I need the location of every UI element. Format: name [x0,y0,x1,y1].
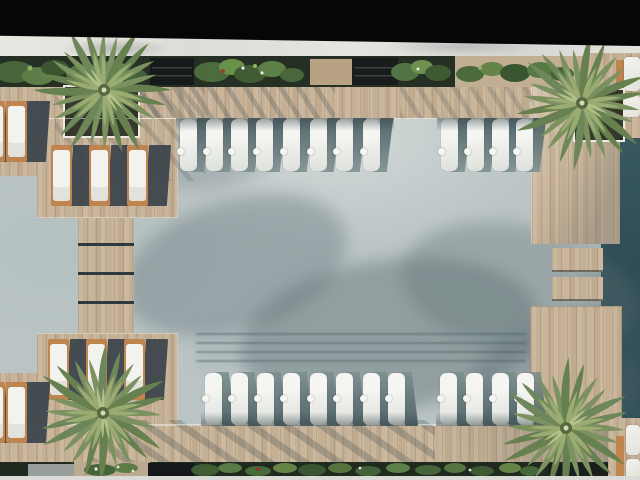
side-table-knob [464,148,471,155]
side-table-knob [228,148,235,155]
deck-overhang-shadow [176,118,394,131]
side-table-knob [385,395,392,402]
side-table-knob [254,395,261,402]
side-table-knob [438,148,445,155]
side-table-knob [333,395,340,402]
side-table-knob [307,395,314,402]
palm-tree-top-right [507,28,640,178]
daybed-mattress [0,106,3,157]
palm-tree-bottom-right [491,353,640,480]
side-table-knob [307,148,314,155]
side-table-knob [333,148,340,155]
side-table-knob [280,395,287,402]
side-table-knob [360,148,367,155]
side-table-knob [463,395,470,402]
daybed-mattress [8,106,25,157]
side-table-knob [228,395,235,402]
palm-tree-bottom-left [28,338,178,480]
side-table-knob [489,148,496,155]
bottom-light-strip [0,476,640,480]
side-table-knob [437,395,444,402]
daybed-mattress [0,387,3,438]
side-table-knob [203,148,210,155]
side-table-knob [202,395,209,402]
daybed-mattress [8,387,25,438]
side-table-knob [360,395,367,402]
side-table-knob [253,148,260,155]
side-table-knob [280,148,287,155]
pool-aerial-render [0,0,640,480]
deck-overhang-shadow [201,412,417,426]
